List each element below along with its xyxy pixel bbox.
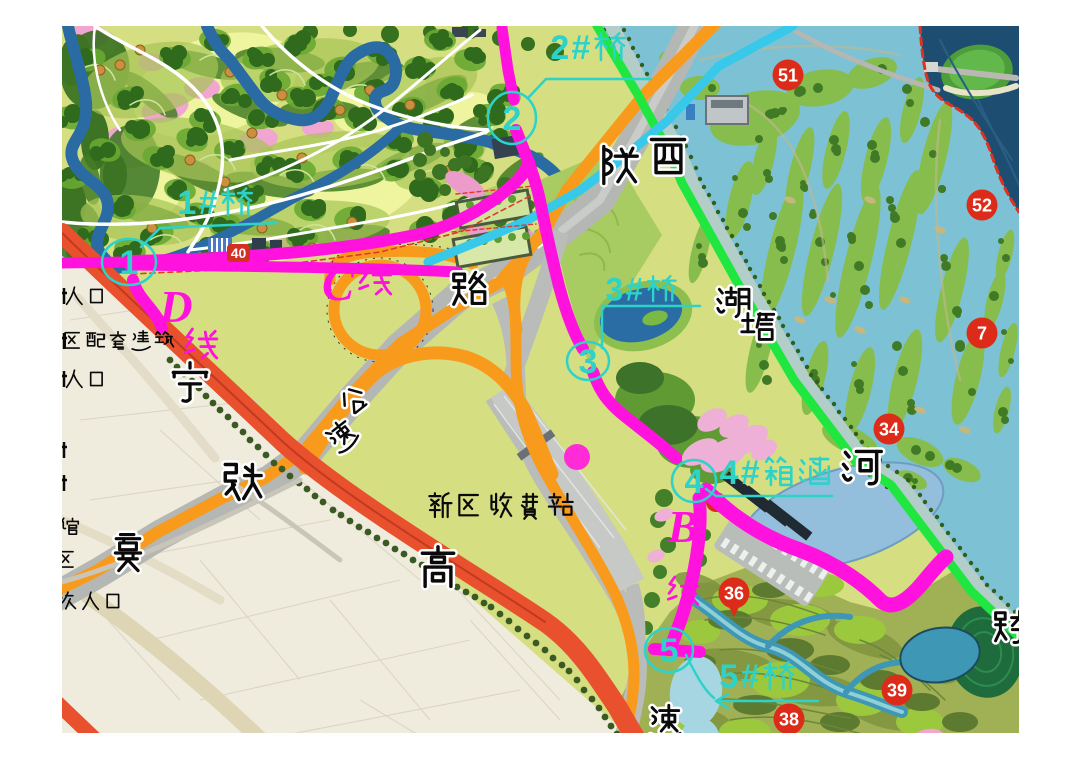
svg-text:#: # bbox=[741, 454, 760, 492]
svg-text:51: 51 bbox=[778, 66, 798, 86]
svg-text:5: 5 bbox=[660, 632, 679, 670]
svg-text:#: # bbox=[198, 184, 217, 222]
svg-text:36: 36 bbox=[724, 584, 744, 604]
svg-text:2: 2 bbox=[503, 100, 522, 138]
svg-text:#: # bbox=[625, 272, 643, 308]
svg-text:B: B bbox=[667, 501, 699, 552]
svg-text:#: # bbox=[571, 29, 590, 67]
svg-text:38: 38 bbox=[779, 710, 799, 730]
svg-text:7: 7 bbox=[977, 324, 987, 344]
svg-text:52: 52 bbox=[972, 196, 992, 216]
svg-text:34: 34 bbox=[879, 420, 899, 440]
svg-text:3: 3 bbox=[579, 343, 598, 381]
svg-text:2: 2 bbox=[550, 29, 569, 67]
svg-text:5: 5 bbox=[719, 658, 738, 696]
svg-text:40: 40 bbox=[231, 245, 247, 261]
svg-text:4: 4 bbox=[720, 454, 739, 492]
svg-text:D: D bbox=[158, 281, 192, 332]
svg-text:1: 1 bbox=[120, 244, 139, 282]
svg-text:#: # bbox=[740, 658, 759, 696]
svg-text:C: C bbox=[322, 258, 355, 311]
svg-text:4: 4 bbox=[685, 463, 704, 501]
svg-text:39: 39 bbox=[887, 681, 907, 701]
svg-text:1: 1 bbox=[177, 184, 196, 222]
svg-text:3: 3 bbox=[606, 272, 624, 308]
